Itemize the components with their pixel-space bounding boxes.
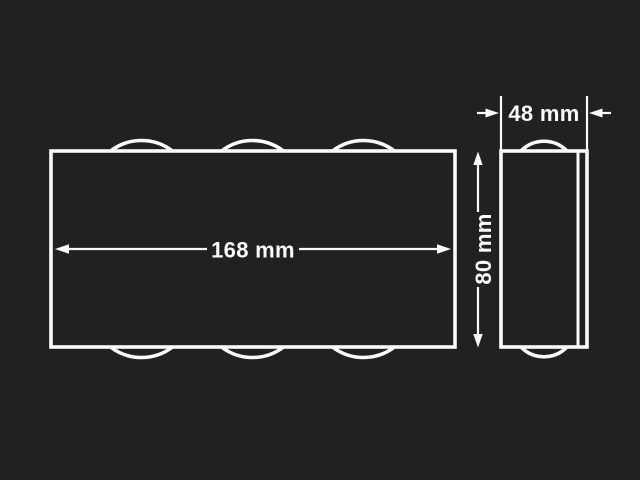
width-arrowhead-left-icon [55, 244, 69, 253]
dimension-drawing-canvas: 168 mm 48 mm 8 [0, 0, 640, 480]
height-dimension: 80 mm [471, 152, 496, 348]
lamp-dimension-diagram: 168 mm 48 mm 8 [0, 0, 640, 480]
height-arrowhead-up-icon [473, 152, 482, 166]
depth-arrowhead-left-icon [486, 109, 500, 118]
depth-arrowhead-right-icon [589, 109, 603, 118]
width-dimension-label: 168 mm [211, 238, 295, 263]
height-arrowhead-down-icon [473, 334, 482, 348]
depth-dimension-label: 48 mm [508, 101, 579, 126]
side-view-body [501, 151, 587, 347]
side-view [501, 141, 587, 357]
width-dimension: 168 mm [55, 238, 451, 263]
width-arrowhead-right-icon [437, 244, 451, 253]
height-dimension-label: 80 mm [471, 213, 496, 284]
